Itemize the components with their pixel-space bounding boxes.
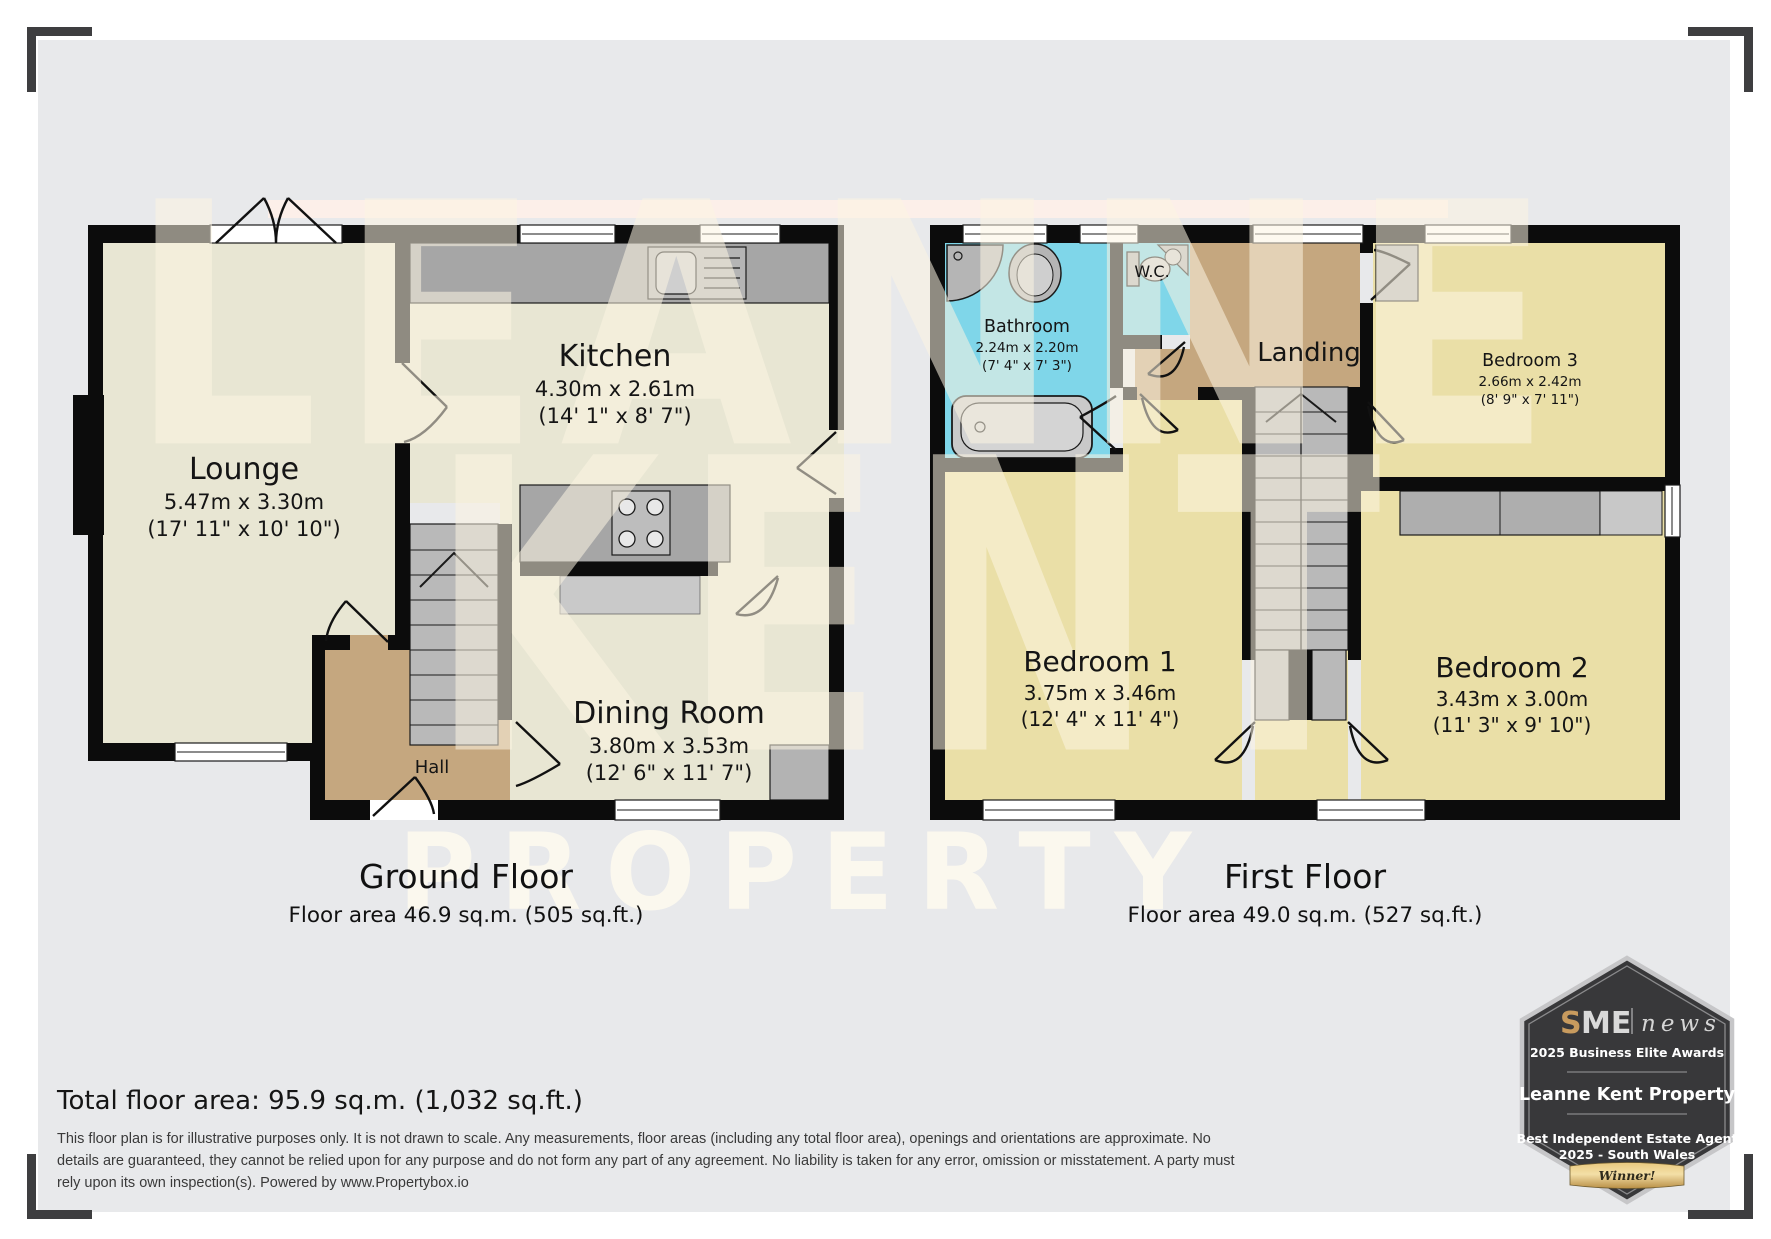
lounge-label: Lounge 5.47m x 3.30m (17' 11" x 10' 10"): [147, 450, 340, 544]
first-floor-area: Floor area 49.0 sq.m. (527 sq.ft.): [1128, 903, 1483, 928]
corner-bracket-top-left: [27, 27, 92, 92]
room-name: Bedroom 1: [1021, 644, 1180, 680]
sme-logo-s: S: [1560, 1006, 1582, 1041]
ground-floor-area: Floor area 46.9 sq.m. (505 sq.ft.): [289, 903, 644, 928]
room-size-metric: 5.47m x 3.30m: [147, 489, 340, 516]
landing-label: Landing: [1257, 337, 1361, 371]
badge-company: Leanne Kent Property: [1519, 1085, 1736, 1105]
bathroom-label: Bathroom 2.24m x 2.20m (7' 4" x 7' 3"): [976, 316, 1079, 375]
room-name: Landing: [1257, 337, 1361, 371]
sme-logo-me: ME: [1581, 1006, 1631, 1041]
corner-bracket-bottom-right: [1688, 1154, 1753, 1219]
room-size-metric: 3.43m x 3.00m: [1433, 686, 1592, 712]
hob: [612, 491, 670, 555]
floorplan-page: LEANNE KENT PROPERTY Lounge 5.47m x 3.30…: [0, 0, 1771, 1239]
room-size-metric: 3.75m x 3.46m: [1021, 680, 1180, 706]
badge-awards-line: 2025 Business Elite Awards: [1530, 1045, 1724, 1060]
room-name: Hall: [415, 756, 450, 779]
disclaimer-text: This floor plan is for illustrative purp…: [57, 1129, 1247, 1194]
bedroom1-label: Bedroom 1 3.75m x 3.46m (12' 4" x 11' 4"…: [1021, 644, 1180, 732]
wc-label: W.C.: [1134, 262, 1169, 283]
first-floor-stairs: [1255, 387, 1348, 720]
corner-bracket-bottom-left: [27, 1154, 92, 1219]
ground-stairs: [410, 524, 498, 745]
room-size-imperial: (12' 6" x 11' 7"): [573, 760, 765, 787]
room-name: Dining Room: [573, 694, 765, 733]
room-size-imperial: (8' 9" x 7' 11"): [1479, 391, 1582, 409]
sme-logo-news: news: [1641, 1011, 1721, 1037]
room-size-imperial: (11' 3" x 9' 10"): [1433, 712, 1592, 738]
room-name: Lounge: [147, 450, 340, 489]
kitchen-label: Kitchen 4.30m x 2.61m (14' 1" x 8' 7"): [535, 337, 695, 431]
total-floor-area: Total floor area: 95.9 sq.m. (1,032 sq.f…: [57, 1086, 583, 1116]
room-size-metric: 4.30m x 2.61m: [535, 376, 695, 403]
room-size-imperial: (12' 4" x 11' 4"): [1021, 706, 1180, 732]
room-name: Bedroom 2: [1433, 650, 1592, 686]
room-size-metric: 2.66m x 2.42m: [1479, 373, 1582, 391]
corner-bracket-top-right: [1688, 27, 1753, 92]
room-size-imperial: (7' 4" x 7' 3"): [976, 357, 1079, 375]
sink-bowl: [656, 252, 696, 294]
bedroom2-label: Bedroom 2 3.43m x 3.00m (11' 3" x 9' 10"…: [1433, 650, 1592, 738]
winner-label: Winner!: [1599, 1168, 1656, 1183]
room-size-metric: 2.24m x 2.20m: [976, 339, 1079, 357]
dining-cupboard: [770, 745, 829, 800]
bedroom2-wardrobe: [1400, 491, 1662, 535]
chimney-breast: [73, 395, 104, 535]
ground-floor-caption: Ground Floor: [359, 857, 573, 896]
kitchen-unit: [560, 576, 700, 614]
room-size-imperial: (14' 1" x 8' 7"): [535, 403, 695, 430]
first-floor-caption: First Floor: [1224, 857, 1386, 896]
back-door-opening: [829, 430, 844, 498]
bedroom3-closet: [1376, 245, 1418, 301]
bedroom3-label: Bedroom 3 2.66m x 2.42m (8' 9" x 7' 11"): [1479, 350, 1582, 409]
hall-label: Hall: [415, 756, 450, 779]
dining-room-label: Dining Room 3.80m x 3.53m (12' 6" x 11' …: [573, 694, 765, 788]
badge-title-line2: 2025 - South Wales: [1559, 1147, 1695, 1162]
room-name: Bathroom: [976, 316, 1079, 339]
room-name: Kitchen: [535, 337, 695, 376]
room-name: Bedroom 3: [1479, 350, 1582, 373]
room-size-metric: 3.80m x 3.53m: [573, 733, 765, 760]
room-size-imperial: (17' 11" x 10' 10"): [147, 516, 340, 543]
room-name: W.C.: [1134, 262, 1169, 283]
badge-title-line1: Best Independent Estate Agent: [1517, 1131, 1738, 1146]
